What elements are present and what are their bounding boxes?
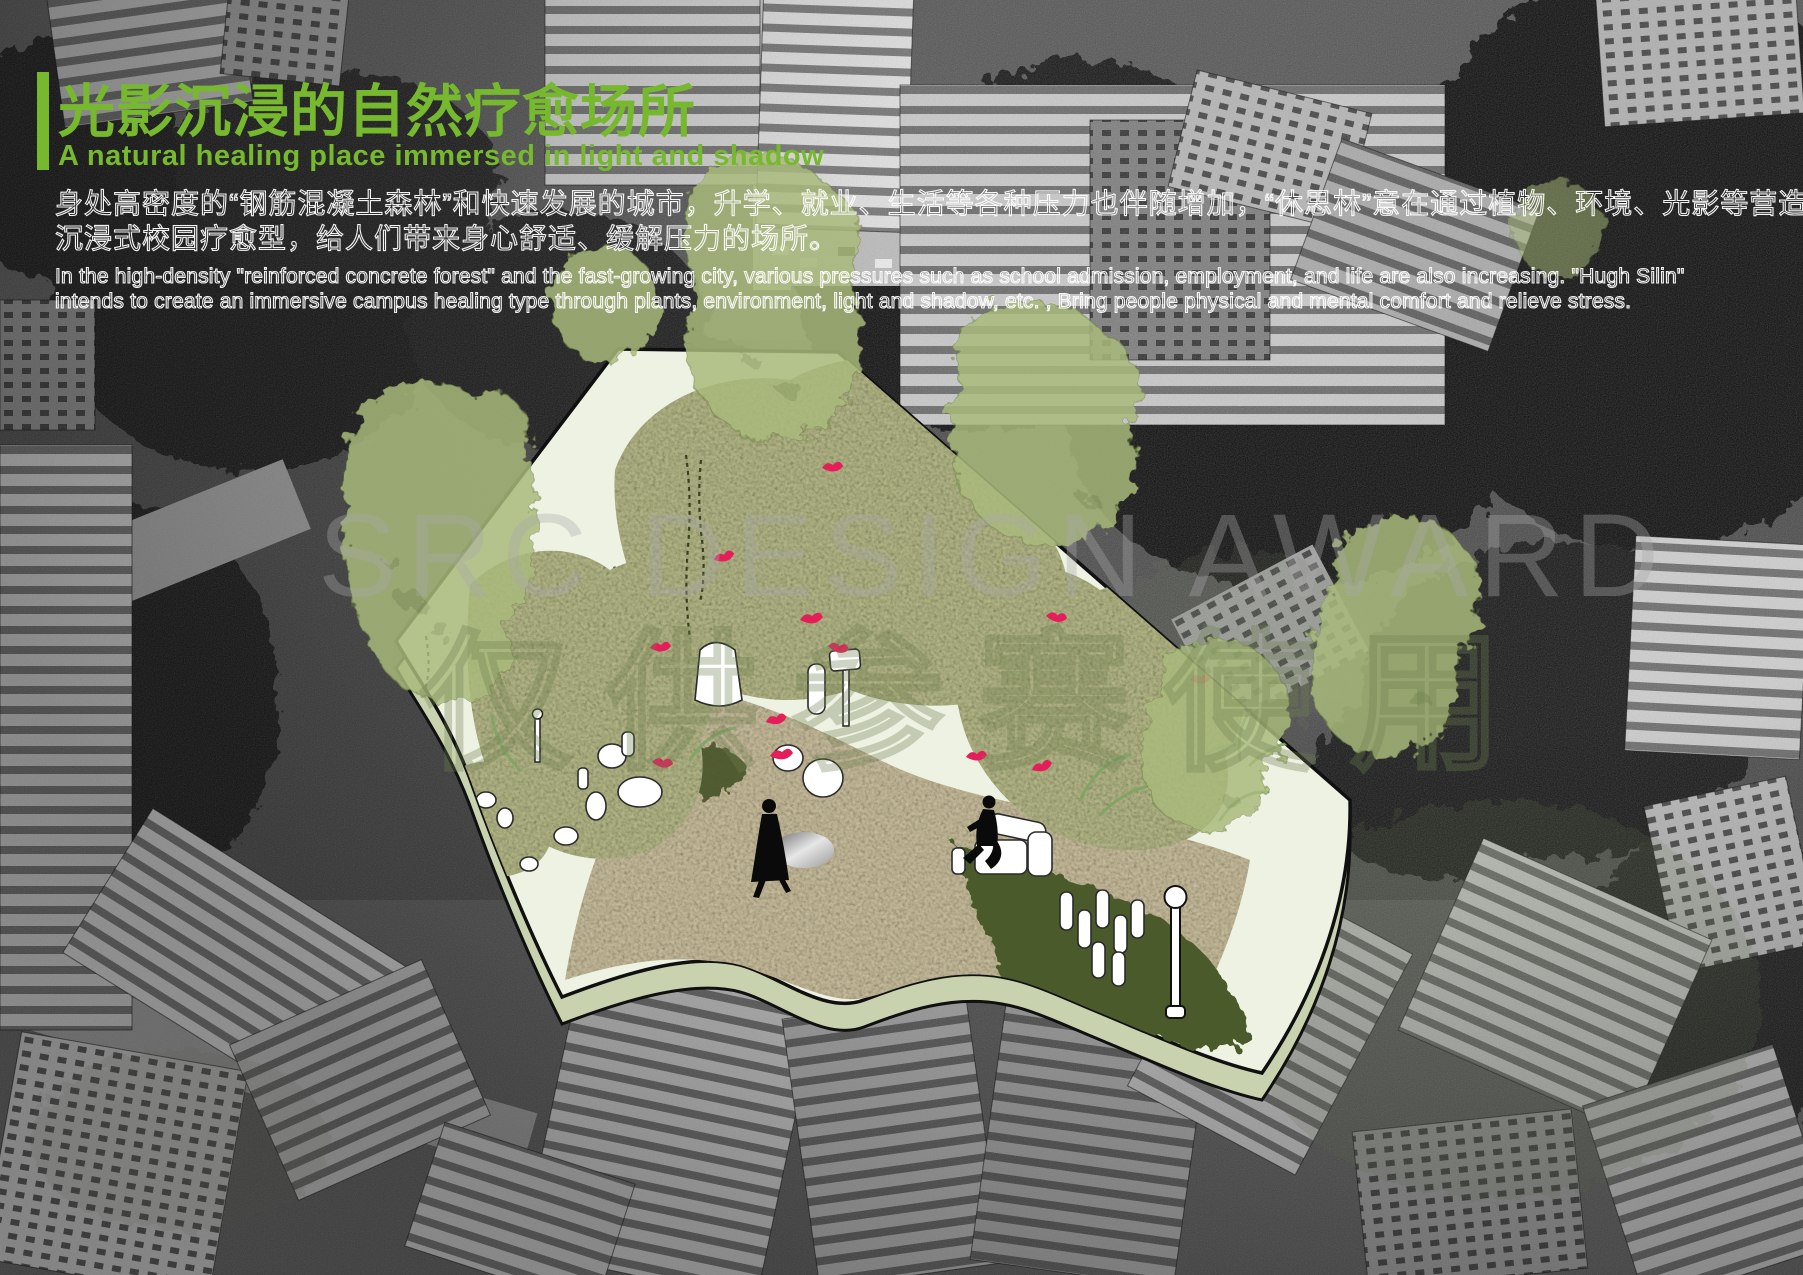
presentation-board: SRC DESIGN AWARD 仅供参赛使用 光影沉浸的自然疗愈场所 A na…: [0, 0, 1803, 1275]
board-artwork: [0, 0, 1803, 1275]
